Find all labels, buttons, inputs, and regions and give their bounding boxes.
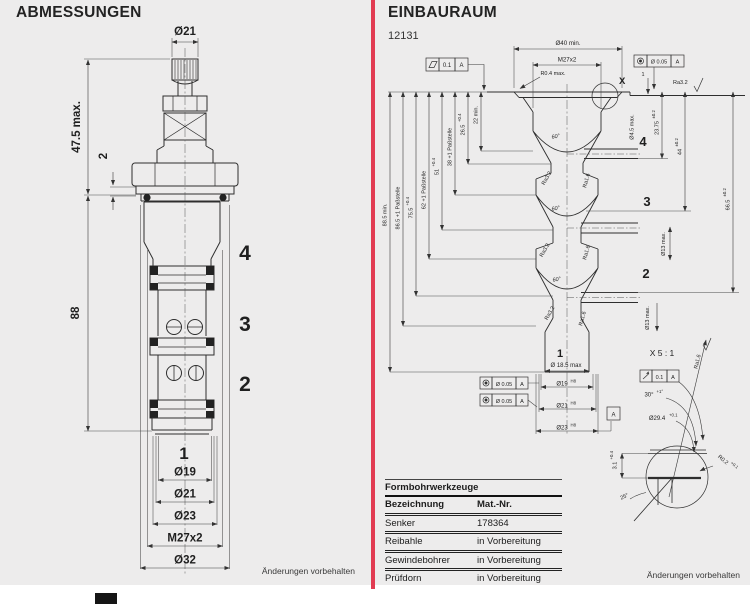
svg-text:66.5: 66.5 <box>726 200 732 211</box>
form-tools-table: Formbohrwerkzeuge Bezeichnung Mat.-Nr. S… <box>385 479 562 590</box>
flatness-frame: 0.1 A <box>426 58 468 71</box>
cone-ra32-2: Ra3.2 <box>539 243 552 259</box>
svg-text:23.75: 23.75 <box>655 121 661 135</box>
cone-ra32-1: Ra3.2 <box>541 171 554 187</box>
concentricity-datum: A <box>520 399 524 405</box>
dim-d185: Ø 18.5 max <box>550 363 581 369</box>
concentricity-datum: A <box>520 382 524 388</box>
dim-flange-thickness: 2 <box>98 153 110 159</box>
dim-depth-62: 62 +1 Paßstelle <box>422 171 428 209</box>
technical-drawing-canvas: Ø21 47.5 max. 2 88 4 3 2 1 Ø19 Ø21 Ø23 M… <box>0 0 750 604</box>
svg-text:Ø21: Ø21 <box>556 404 568 410</box>
svg-text:+0.1: +0.1 <box>669 413 678 418</box>
dim-thread-cavity: M27x2 <box>558 57 577 64</box>
dim-height-max: 47.5 max. <box>71 101 83 153</box>
svg-text:Ø19: Ø19 <box>556 382 568 388</box>
dim-d21: Ø21 <box>174 489 196 501</box>
stage-label-3: 3 <box>239 313 251 336</box>
tool-name: Reibahle <box>385 534 477 550</box>
detail-marker-x: X <box>619 76 626 87</box>
datum-a-box: A <box>607 407 620 420</box>
concentricity-frame-d21: Ø 0.05 A <box>480 394 528 406</box>
bottom-dark-chip <box>95 593 117 604</box>
dim-depth-22: 22 min. <box>474 106 480 125</box>
left-footer-note: Änderungen vorbehalten <box>245 566 355 576</box>
tool-matnr: 178364 <box>477 516 509 532</box>
surface-finish-symbols <box>694 78 711 350</box>
dim-depth-755: 75.5 +0.4 <box>405 196 415 218</box>
cavity-stage-1: 1 <box>557 348 563 360</box>
runout-datum: A <box>671 375 675 381</box>
cavity-leader-lines <box>468 65 713 498</box>
table-col-matnr: Mat.-Nr. <box>477 497 512 513</box>
cavity-stage-2: 2 <box>642 266 649 281</box>
dim-step-1: 1 <box>641 72 644 78</box>
dim-body-length: 88 <box>70 306 82 319</box>
valve-extension-lines <box>84 38 230 569</box>
dim-angle25: 25° <box>620 493 630 502</box>
svg-text:R0.2: R0.2 <box>716 454 729 466</box>
concentricity-datum: A <box>676 60 680 66</box>
detail-title: X 5 : 1 <box>650 348 675 358</box>
svg-text:Ø23: Ø23 <box>556 426 568 432</box>
dim-d44: 44 ±0.2 <box>674 138 684 156</box>
table-row: Reibahle in Vorbereitung <box>385 534 562 553</box>
dim-d294: Ø29.4 +0.1 <box>649 413 678 423</box>
cavity-outline <box>487 83 745 372</box>
svg-text:44: 44 <box>678 149 684 155</box>
dim-ra32-top: Ra3.2 <box>673 80 688 86</box>
concentricity-frame-top: Ø 0.05 A <box>634 55 684 67</box>
svg-text:Ø29.4: Ø29.4 <box>649 416 666 422</box>
datum-label: A <box>611 413 615 419</box>
svg-text:H8: H8 <box>571 423 577 428</box>
panel-divider <box>371 0 375 589</box>
concentricity-frame-d19: Ø 0.05 A <box>480 377 528 389</box>
svg-text:H8: H8 <box>571 379 577 384</box>
runout-value: 0.1 <box>656 375 664 381</box>
dim-d19-h8: Ø19 H8 <box>556 379 576 388</box>
tool-name: Gewindebohrer <box>385 553 477 569</box>
cavity-extension-lines <box>388 46 739 478</box>
dim-d13-upper: Ø13 max. <box>661 232 667 256</box>
svg-text:H8: H8 <box>571 401 577 406</box>
concentricity-value: Ø 0.05 <box>496 399 513 405</box>
cone-angle-60-stage4: 60° <box>551 133 561 140</box>
dim-r02: R0.2 +0.1 <box>716 452 740 474</box>
flatness-datum: A <box>459 63 463 69</box>
dim-depth-51: 51 +0.4 <box>431 157 441 175</box>
svg-text:±0.2: ±0.2 <box>722 188 727 197</box>
dim-d21-h8: Ø21 H8 <box>556 401 576 410</box>
svg-text:+1°: +1° <box>657 389 664 394</box>
cavity-port-centerlines <box>567 154 640 298</box>
runout-frame: 0.1 A <box>640 370 679 382</box>
dim-depth31: 3.1 +0.4 <box>609 450 619 469</box>
cone-angle-60-stage3: 60° <box>551 205 561 212</box>
dim-r04: R0.4 max. <box>540 71 566 77</box>
cone-angle-60-stage2: 60° <box>552 276 562 283</box>
dim-d40: Ø40 min. <box>555 40 580 47</box>
flatness-value: 0.1 <box>443 63 452 69</box>
dim-top-diameter: Ø21 <box>174 26 196 38</box>
stage-label-2: 2 <box>239 373 251 396</box>
dim-d32: Ø32 <box>174 555 196 567</box>
valve-dimension-lines <box>88 42 230 568</box>
cavity-stage-3: 3 <box>643 194 650 209</box>
dim-depth-885: 88.5 min. <box>383 203 389 226</box>
svg-text:+0.4: +0.4 <box>457 113 462 122</box>
table-row: Senker 178364 <box>385 516 562 535</box>
dim-d23: Ø23 <box>174 511 196 523</box>
dim-depth-265: 26.5 +0.4 <box>457 113 467 135</box>
svg-text:+0.1: +0.1 <box>730 460 740 470</box>
dim-depth-865: 86.5 +1 Paßstelle <box>396 187 402 230</box>
concentricity-value: Ø 0.05 <box>651 60 668 66</box>
svg-text:+0.4: +0.4 <box>405 196 410 205</box>
svg-text:30°: 30° <box>644 393 654 399</box>
svg-text:±0.2: ±0.2 <box>674 138 679 147</box>
concentricity-value: Ø 0.05 <box>496 382 513 388</box>
tool-matnr: in Vorbereitung <box>477 534 541 550</box>
cone-ra16-2: Ra1.6 <box>582 245 592 261</box>
dim-d13-lower: Ø13 max. <box>645 306 651 330</box>
cavity-stage-4: 4 <box>639 134 647 149</box>
svg-text:+0.4: +0.4 <box>431 157 436 166</box>
table-title: Formbohrwerkzeuge <box>385 480 562 497</box>
dim-thread: M27x2 <box>167 533 202 545</box>
table-header-row: Bezeichnung Mat.-Nr. <box>385 497 562 516</box>
cone-ra16-3: Ra1.6 <box>578 311 588 327</box>
cone-ra16-1: Ra1.6 <box>582 173 592 189</box>
catalog-page: ABMESSUNGEN EINBAURAUM 12131 <box>0 0 750 604</box>
dim-d665: 66.5 ±0.2 <box>722 188 732 211</box>
dim-d2375: 23.75 ±0.2 <box>651 110 661 135</box>
svg-text:±0.2: ±0.2 <box>651 110 656 119</box>
svg-text:26.5: 26.5 <box>461 125 467 136</box>
dim-d23-h8: Ø23 H8 <box>556 423 576 432</box>
svg-text:3.1: 3.1 <box>613 462 619 470</box>
dim-d45: Ø4.5 max. <box>630 114 636 140</box>
dim-ra16-detail: Ra1.6 <box>693 354 702 370</box>
table-row: Gewindebohrer in Vorbereitung <box>385 553 562 572</box>
dim-d19: Ø19 <box>174 467 196 479</box>
dim-depth-38: 38 +1 Paßstelle <box>448 128 454 166</box>
dim-angle30: 30° +1° <box>644 389 663 399</box>
svg-text:75.5: 75.5 <box>409 208 415 219</box>
svg-text:51: 51 <box>435 169 441 175</box>
tool-matnr: in Vorbereitung <box>477 553 541 569</box>
stage-label-4: 4 <box>239 242 251 265</box>
tool-name: Senker <box>385 516 477 532</box>
cone-ra32-3: Ra3.2 <box>544 306 557 322</box>
detail-x-geometry <box>630 446 708 521</box>
cavity-dimension-lines <box>390 49 733 478</box>
stage-label-1: 1 <box>179 444 188 463</box>
table-col-bezeichnung: Bezeichnung <box>385 497 477 513</box>
svg-text:+0.4: +0.4 <box>609 450 614 459</box>
right-footer-note: Änderungen vorbehalten <box>628 570 740 580</box>
